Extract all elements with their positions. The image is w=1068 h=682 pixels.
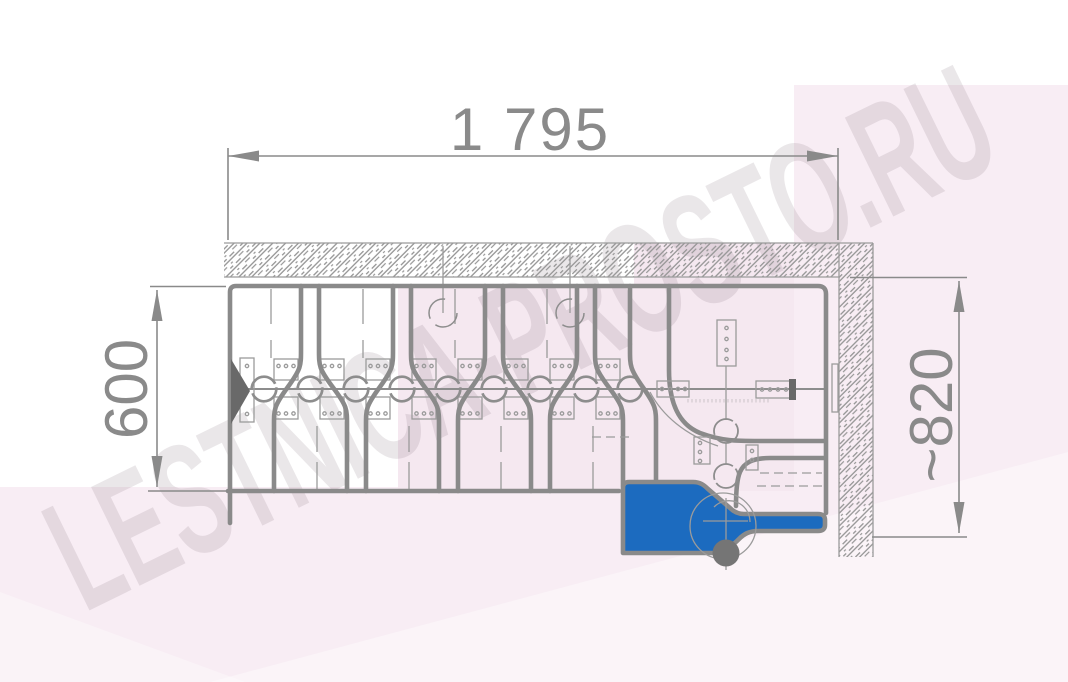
svg-text:~820: ~820: [898, 347, 965, 482]
svg-text:600: 600: [93, 339, 160, 439]
svg-text:1 795: 1 795: [450, 96, 610, 163]
